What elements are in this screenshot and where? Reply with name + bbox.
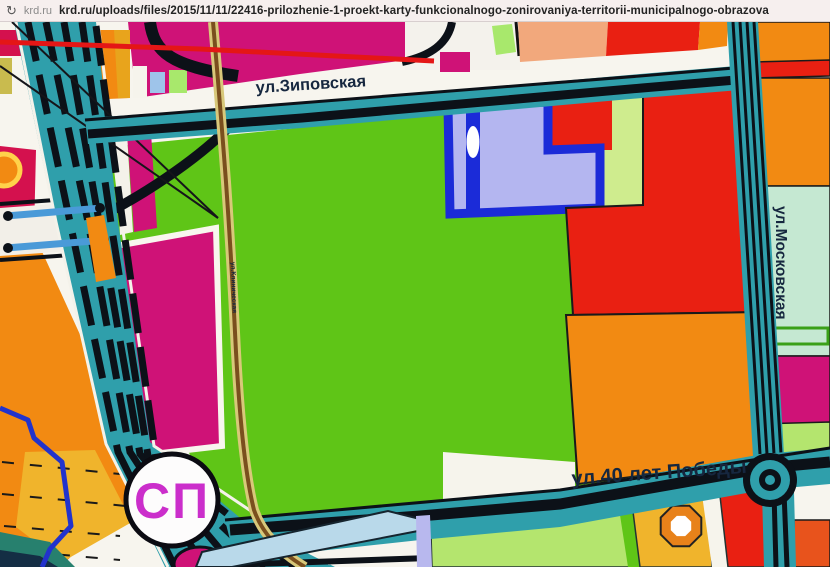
- site-label: krd.ru: [24, 5, 52, 17]
- url-text[interactable]: krd.ru/uploads/files/2015/11/11/22416-pr…: [59, 5, 769, 17]
- roundabout: [743, 453, 797, 507]
- zoning-map-canvas: СП ул.Зиповская ул.Московская ул.40 лет …: [0, 22, 830, 567]
- reload-icon[interactable]: ↻: [6, 4, 17, 17]
- pond-oval: [467, 126, 480, 158]
- lavender-strip: [416, 515, 432, 567]
- browser-address-bar[interactable]: ↻ krd.ru krd.ru/uploads/files/2015/11/11…: [0, 0, 830, 22]
- zoning-map-image: СП ул.Зиповская ул.Московская ул.40 лет …: [0, 22, 830, 567]
- sp-marker-label: СП: [134, 473, 210, 529]
- street-label-moskovskaya: ул.Московская: [772, 206, 789, 320]
- sp-marker: СП: [126, 454, 218, 546]
- browser-window: ↻ krd.ru krd.ru/uploads/files/2015/11/11…: [0, 0, 830, 567]
